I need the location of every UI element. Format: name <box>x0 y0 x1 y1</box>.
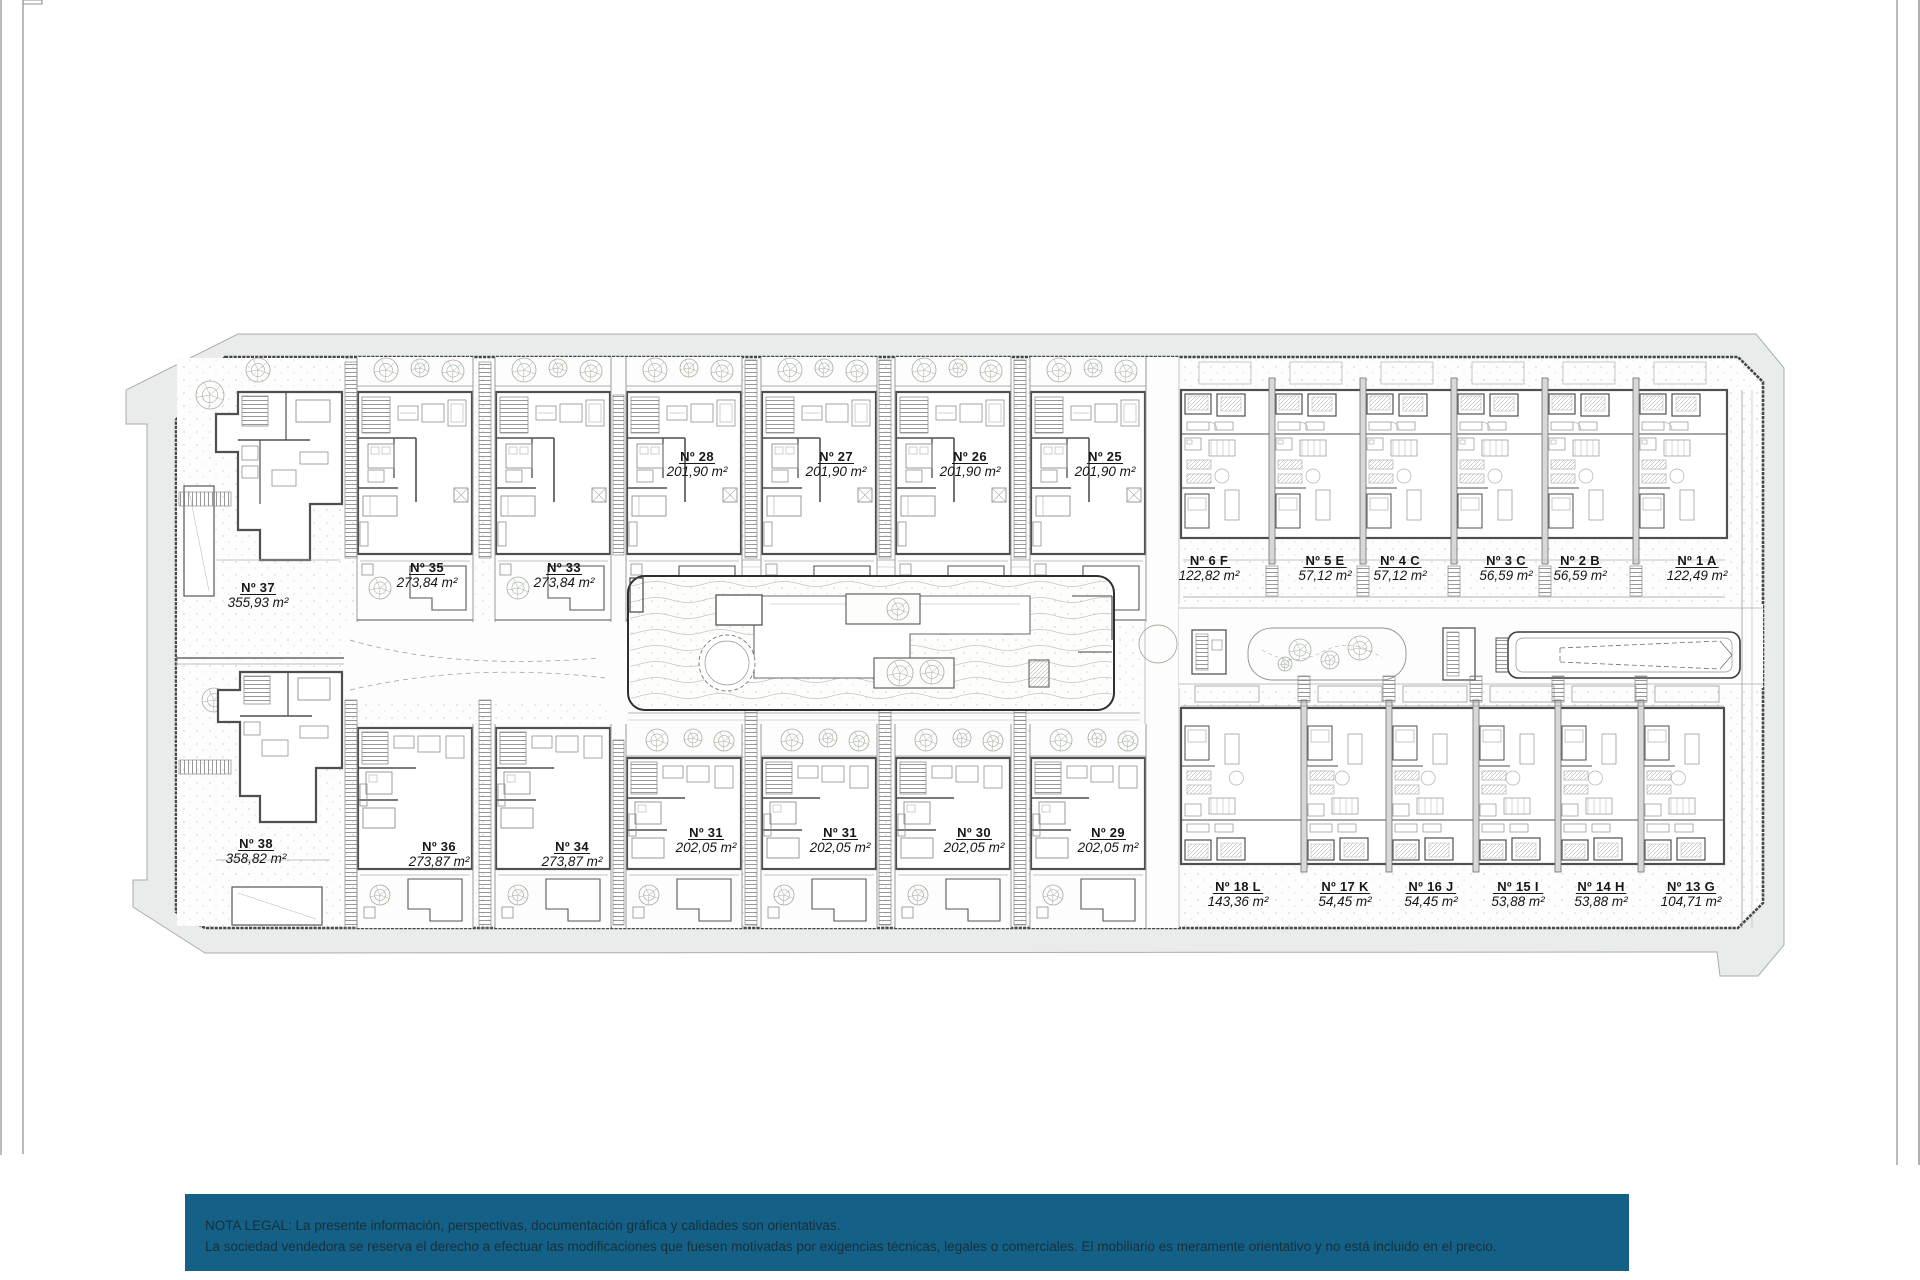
svg-text:Nº 3 C: Nº 3 C <box>1486 553 1526 568</box>
svg-text:Nº 33: Nº 33 <box>547 560 581 575</box>
svg-text:202,05 m²: 202,05 m² <box>809 840 871 855</box>
svg-text:Nº 31: Nº 31 <box>823 825 857 840</box>
svg-text:201,90 m²: 201,90 m² <box>805 464 867 479</box>
svg-text:273,87 m²: 273,87 m² <box>408 854 470 869</box>
svg-text:53,88 m²: 53,88 m² <box>1574 894 1628 909</box>
svg-text:Nº 26: Nº 26 <box>953 449 987 464</box>
svg-text:358,82 m²: 358,82 m² <box>226 851 287 866</box>
svg-text:Nº 30: Nº 30 <box>957 825 991 840</box>
svg-text:Nº 28: Nº 28 <box>680 449 714 464</box>
svg-text:Nº 1 A: Nº 1 A <box>1677 553 1717 568</box>
svg-text:NOTA LEGAL: La presente inform: NOTA LEGAL: La presente información, per… <box>205 1218 840 1233</box>
svg-text:54,45 m²: 54,45 m² <box>1318 894 1372 909</box>
svg-text:Nº 35: Nº 35 <box>410 560 444 575</box>
svg-text:122,82 m²: 122,82 m² <box>1179 568 1240 583</box>
svg-text:201,90 m²: 201,90 m² <box>1074 464 1136 479</box>
svg-text:355,93 m²: 355,93 m² <box>228 595 289 610</box>
svg-text:202,05 m²: 202,05 m² <box>1077 840 1139 855</box>
svg-text:273,87 m²: 273,87 m² <box>541 854 603 869</box>
svg-text:53,88 m²: 53,88 m² <box>1491 894 1545 909</box>
svg-text:Nº 37: Nº 37 <box>241 580 275 595</box>
svg-text:57,12 m²: 57,12 m² <box>1373 568 1427 583</box>
svg-text:Nº 14 H: Nº 14 H <box>1577 879 1624 894</box>
svg-text:Nº 34: Nº 34 <box>555 839 589 854</box>
svg-text:201,90 m²: 201,90 m² <box>939 464 1001 479</box>
svg-text:56,59 m²: 56,59 m² <box>1553 568 1607 583</box>
svg-text:57,12 m²: 57,12 m² <box>1298 568 1352 583</box>
svg-text:Nº 4 C: Nº 4 C <box>1380 553 1420 568</box>
svg-text:56,59 m²: 56,59 m² <box>1479 568 1533 583</box>
svg-text:Nº 13 G: Nº 13 G <box>1667 879 1715 894</box>
svg-text:54,45 m²: 54,45 m² <box>1404 894 1458 909</box>
svg-text:Nº 27: Nº 27 <box>819 449 853 464</box>
svg-text:Nº 36: Nº 36 <box>422 839 456 854</box>
svg-text:Nº 18 L: Nº 18 L <box>1215 879 1261 894</box>
svg-text:La sociedad vendedora se reser: La sociedad vendedora se reserva el dere… <box>205 1239 1496 1254</box>
svg-text:273,84 m²: 273,84 m² <box>533 575 595 590</box>
svg-text:202,05 m²: 202,05 m² <box>675 840 737 855</box>
svg-text:122,49 m²: 122,49 m² <box>1667 568 1728 583</box>
svg-text:Nº 17 K: Nº 17 K <box>1321 879 1369 894</box>
svg-text:Nº 6 F: Nº 6 F <box>1190 553 1228 568</box>
svg-text:Nº 38: Nº 38 <box>239 836 273 851</box>
svg-text:201,90 m²: 201,90 m² <box>666 464 728 479</box>
svg-text:Nº 25: Nº 25 <box>1088 449 1122 464</box>
svg-text:Nº 16 J: Nº 16 J <box>1408 879 1453 894</box>
svg-text:Nº 2 B: Nº 2 B <box>1560 553 1600 568</box>
svg-text:Nº 15 I: Nº 15 I <box>1497 879 1539 894</box>
svg-text:Nº 31: Nº 31 <box>689 825 723 840</box>
svg-text:Nº 29: Nº 29 <box>1091 825 1125 840</box>
svg-text:143,36 m²: 143,36 m² <box>1208 894 1269 909</box>
svg-text:Nº 5 E: Nº 5 E <box>1305 553 1344 568</box>
svg-text:104,71 m²: 104,71 m² <box>1661 894 1722 909</box>
svg-text:202,05 m²: 202,05 m² <box>943 840 1005 855</box>
svg-text:273,84 m²: 273,84 m² <box>396 575 458 590</box>
